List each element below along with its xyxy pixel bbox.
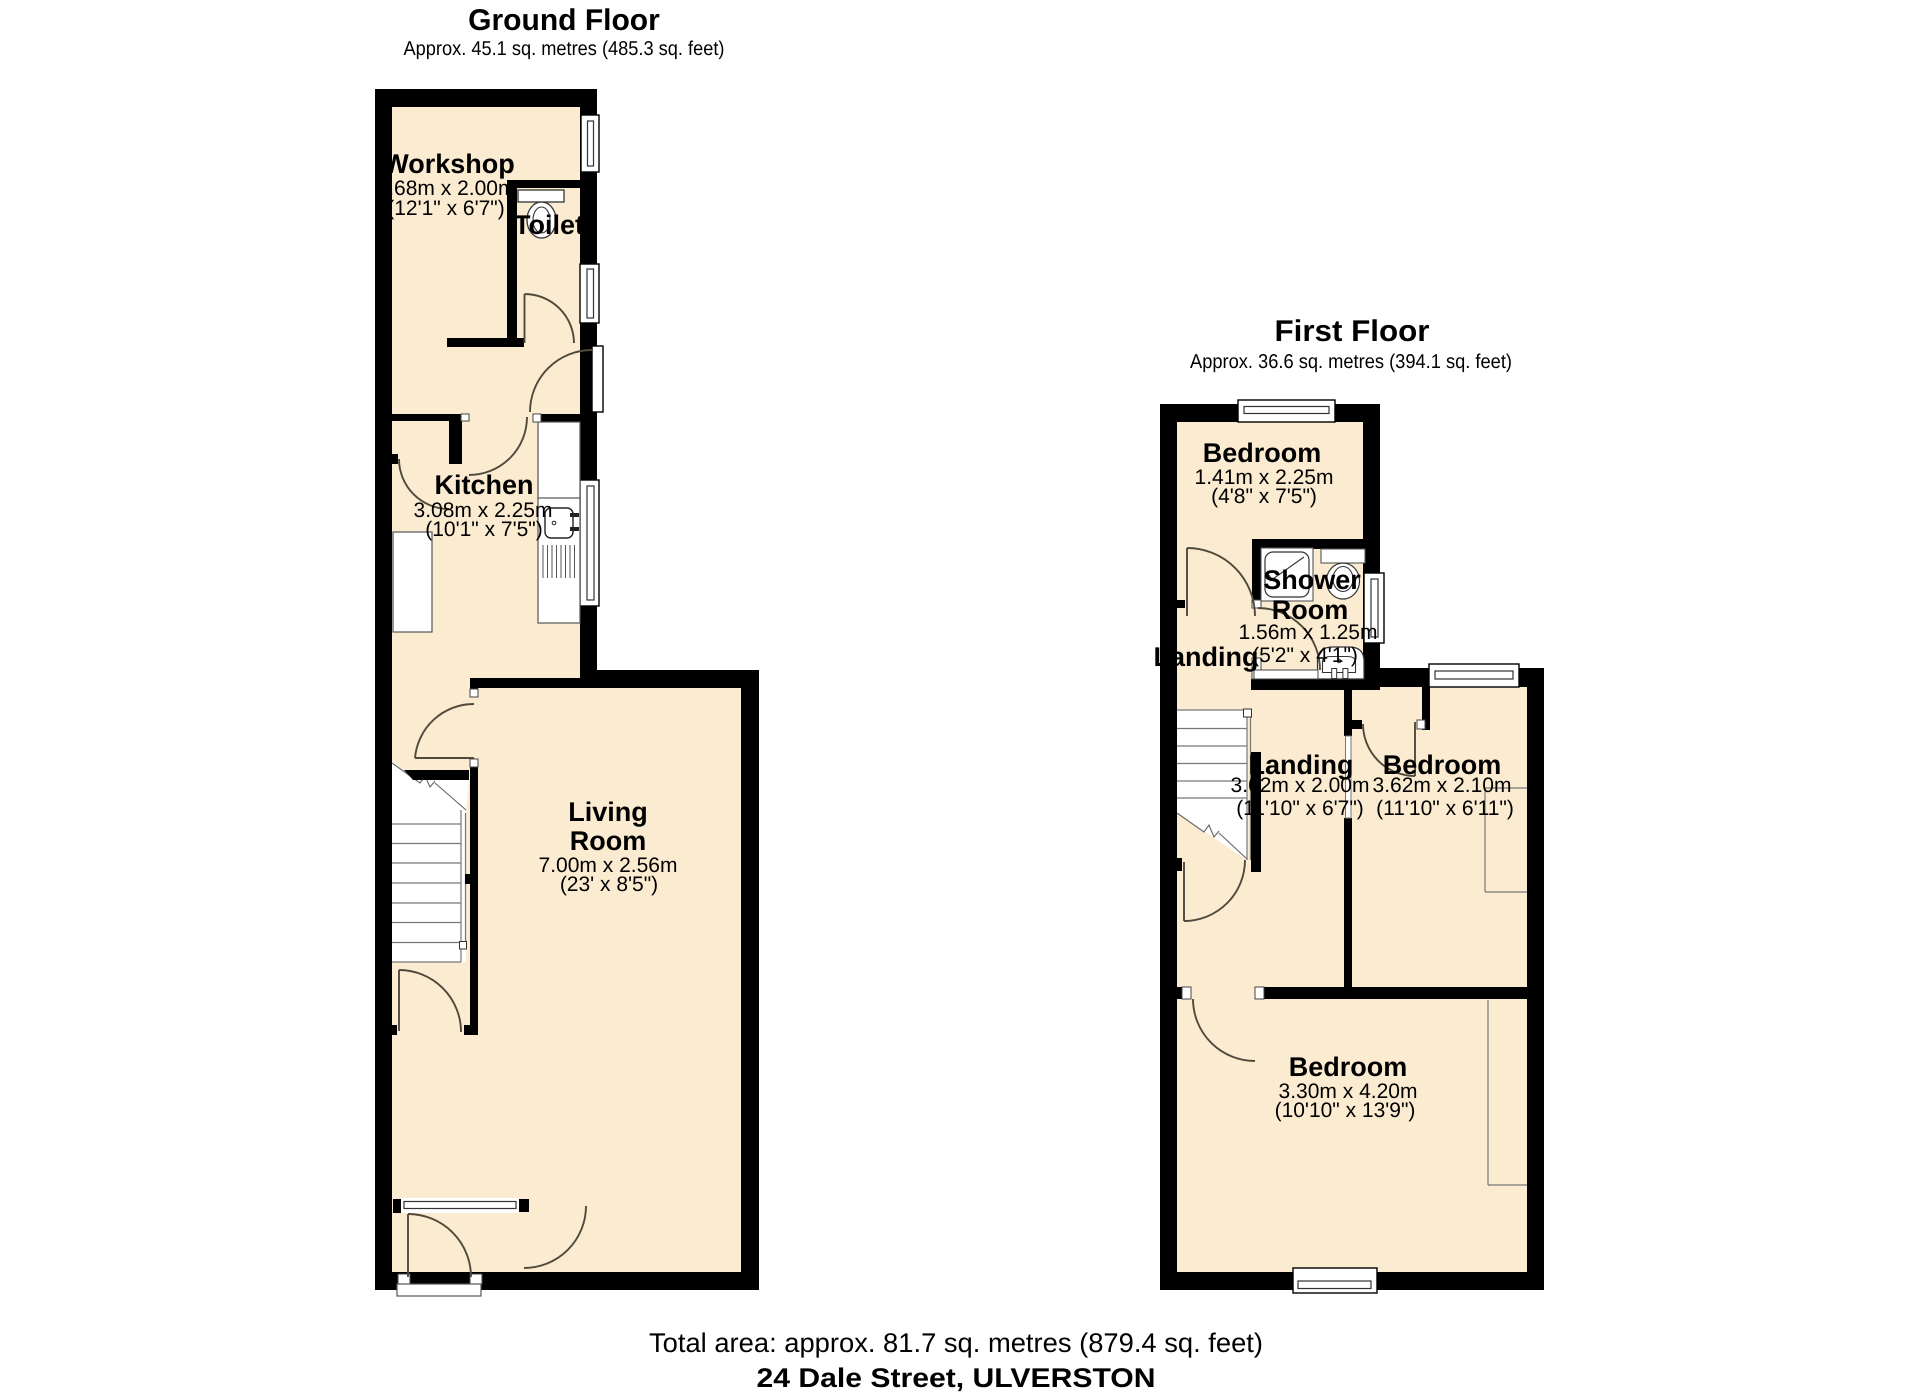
svg-text:Room: Room — [570, 826, 647, 856]
svg-text:3.62m x 2.10m: 3.62m x 2.10m — [1373, 774, 1512, 797]
svg-text:(11'10" x 6'11"): (11'10" x 6'11") — [1376, 797, 1514, 820]
svg-text:Living: Living — [568, 797, 648, 827]
svg-text:(10'1" x 7'5"): (10'1" x 7'5") — [425, 518, 542, 541]
svg-text:(12'1" x 6'7"): (12'1" x 6'7") — [387, 197, 504, 220]
svg-text:Bedroom: Bedroom — [1203, 438, 1322, 468]
svg-text:Total area: approx. 81.7 sq. m: Total area: approx. 81.7 sq. metres (879… — [649, 1328, 1263, 1358]
svg-text:1.56m x 1.25m: 1.56m x 1.25m — [1239, 621, 1378, 644]
svg-text:First Floor: First Floor — [1275, 315, 1430, 348]
svg-text:Bedroom: Bedroom — [1289, 1052, 1408, 1082]
svg-text:Landing: Landing — [1154, 642, 1259, 672]
svg-text:(11'10" x 6'7"): (11'10" x 6'7") — [1236, 797, 1364, 820]
svg-text:Approx. 45.1 sq. metres (485.3: Approx. 45.1 sq. metres (485.3 sq. feet) — [404, 38, 725, 60]
svg-text:3.62m x 2.00m: 3.62m x 2.00m — [1231, 774, 1370, 797]
svg-text:Toilet: Toilet — [514, 210, 584, 240]
svg-text:Workshop: Workshop — [383, 149, 515, 179]
svg-text:24 Dale Street, ULVERSTON: 24 Dale Street, ULVERSTON — [757, 1363, 1156, 1393]
svg-text:Ground Floor: Ground Floor — [468, 4, 660, 37]
svg-text:(4'8" x 7'5"): (4'8" x 7'5") — [1211, 485, 1317, 508]
svg-text:Kitchen: Kitchen — [434, 470, 533, 500]
svg-text:Approx. 36.6 sq. metres (394.1: Approx. 36.6 sq. metres (394.1 sq. feet) — [1190, 351, 1512, 373]
svg-text:(23' x 8'5"): (23' x 8'5") — [560, 873, 658, 896]
svg-text:Shower: Shower — [1263, 565, 1361, 595]
svg-text:(5'2" x 4'1"): (5'2" x 4'1") — [1252, 644, 1358, 667]
svg-text:(10'10" x 13'9"): (10'10" x 13'9") — [1275, 1099, 1416, 1122]
